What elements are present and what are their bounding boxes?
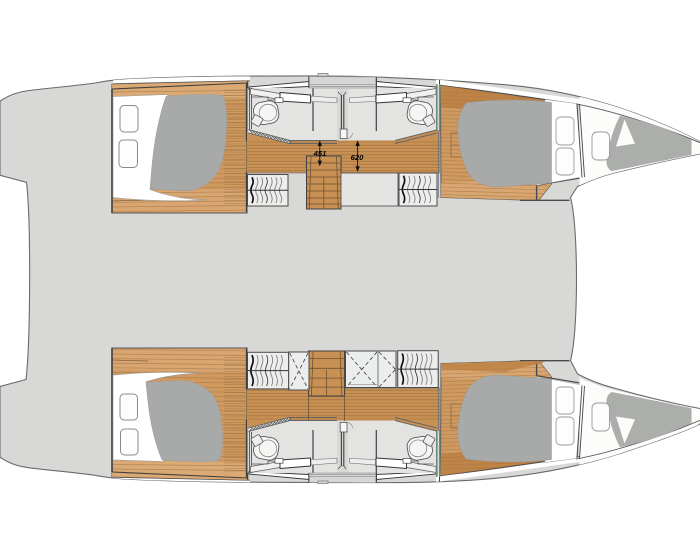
svg-text:451: 451 bbox=[313, 149, 327, 158]
svg-text:620: 620 bbox=[351, 153, 364, 162]
